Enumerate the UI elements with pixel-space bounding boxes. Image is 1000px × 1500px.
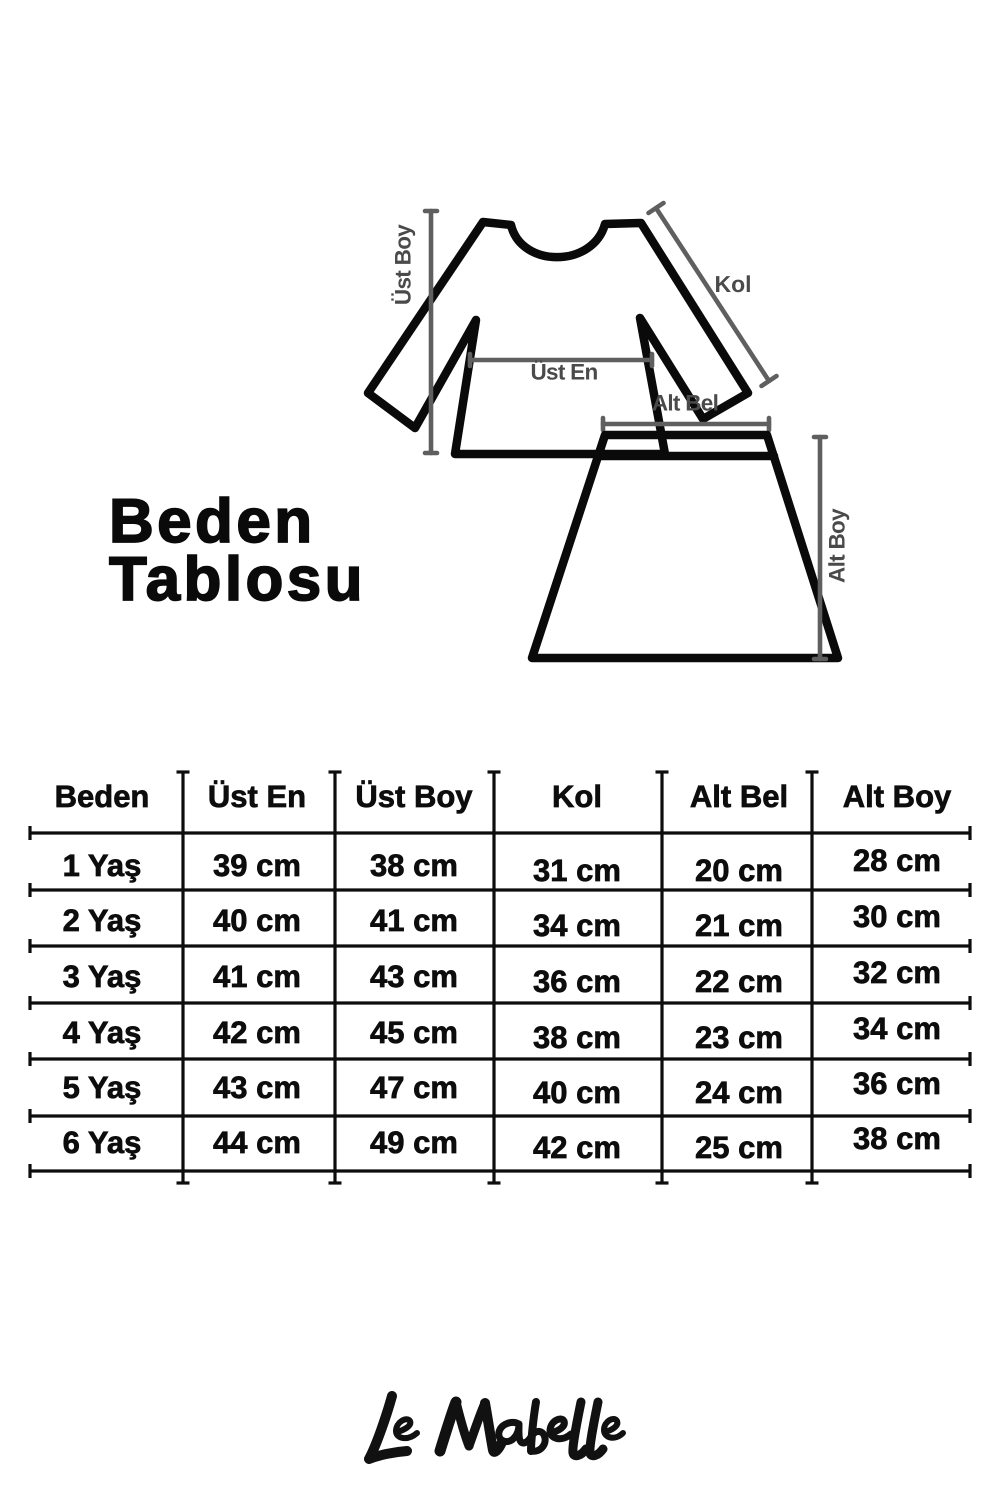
svg-text:38 cm: 38 cm bbox=[853, 1121, 941, 1156]
svg-text:39 cm: 39 cm bbox=[213, 848, 301, 883]
svg-text:6 Yaş: 6 Yaş bbox=[63, 1125, 142, 1160]
svg-text:Üst En: Üst En bbox=[530, 360, 597, 385]
svg-text:20 cm: 20 cm bbox=[695, 853, 783, 888]
svg-text:Üst Boy: Üst Boy bbox=[391, 224, 416, 305]
svg-text:43 cm: 43 cm bbox=[370, 959, 458, 994]
svg-text:36 cm: 36 cm bbox=[853, 1066, 941, 1101]
svg-text:24 cm: 24 cm bbox=[695, 1075, 783, 1110]
svg-text:Tablosu: Tablosu bbox=[109, 545, 366, 614]
svg-text:30 cm: 30 cm bbox=[853, 899, 941, 934]
svg-text:21 cm: 21 cm bbox=[695, 908, 783, 943]
svg-text:44 cm: 44 cm bbox=[213, 1125, 301, 1160]
svg-text:3 Yaş: 3 Yaş bbox=[63, 959, 142, 994]
svg-text:45 cm: 45 cm bbox=[370, 1015, 458, 1050]
svg-text:49 cm: 49 cm bbox=[370, 1125, 458, 1160]
svg-text:Alt Bel: Alt Bel bbox=[690, 779, 788, 814]
svg-text:32 cm: 32 cm bbox=[853, 955, 941, 990]
svg-text:41 cm: 41 cm bbox=[370, 903, 458, 938]
svg-text:41 cm: 41 cm bbox=[213, 959, 301, 994]
svg-text:25 cm: 25 cm bbox=[695, 1130, 783, 1165]
svg-text:22 cm: 22 cm bbox=[695, 964, 783, 999]
svg-text:Kol: Kol bbox=[714, 271, 751, 297]
svg-text:28 cm: 28 cm bbox=[853, 843, 941, 878]
svg-text:4 Yaş: 4 Yaş bbox=[63, 1015, 142, 1050]
svg-text:31 cm: 31 cm bbox=[533, 853, 621, 888]
svg-text:Üst En: Üst En bbox=[208, 779, 306, 814]
svg-text:Kol: Kol bbox=[552, 779, 602, 814]
svg-text:5 Yaş: 5 Yaş bbox=[63, 1070, 142, 1105]
svg-text:42 cm: 42 cm bbox=[213, 1015, 301, 1050]
svg-text:47 cm: 47 cm bbox=[370, 1070, 458, 1105]
svg-text:42 cm: 42 cm bbox=[533, 1130, 621, 1165]
svg-text:38 cm: 38 cm bbox=[370, 848, 458, 883]
svg-text:Üst Boy: Üst Boy bbox=[355, 779, 473, 814]
svg-text:Beden: Beden bbox=[55, 779, 150, 814]
svg-text:43 cm: 43 cm bbox=[213, 1070, 301, 1105]
svg-text:34 cm: 34 cm bbox=[853, 1011, 941, 1046]
svg-text:Alt Bel: Alt Bel bbox=[652, 391, 718, 416]
svg-text:Alt Boy: Alt Boy bbox=[825, 508, 850, 583]
svg-text:2 Yaş: 2 Yaş bbox=[63, 903, 142, 938]
svg-text:40 cm: 40 cm bbox=[213, 903, 301, 938]
svg-text:36 cm: 36 cm bbox=[533, 964, 621, 999]
svg-text:38 cm: 38 cm bbox=[533, 1020, 621, 1055]
svg-text:23 cm: 23 cm bbox=[695, 1020, 783, 1055]
svg-text:34 cm: 34 cm bbox=[533, 908, 621, 943]
svg-text:Alt Boy: Alt Boy bbox=[843, 779, 952, 814]
svg-text:40 cm: 40 cm bbox=[533, 1075, 621, 1110]
svg-text:1 Yaş: 1 Yaş bbox=[63, 848, 142, 883]
